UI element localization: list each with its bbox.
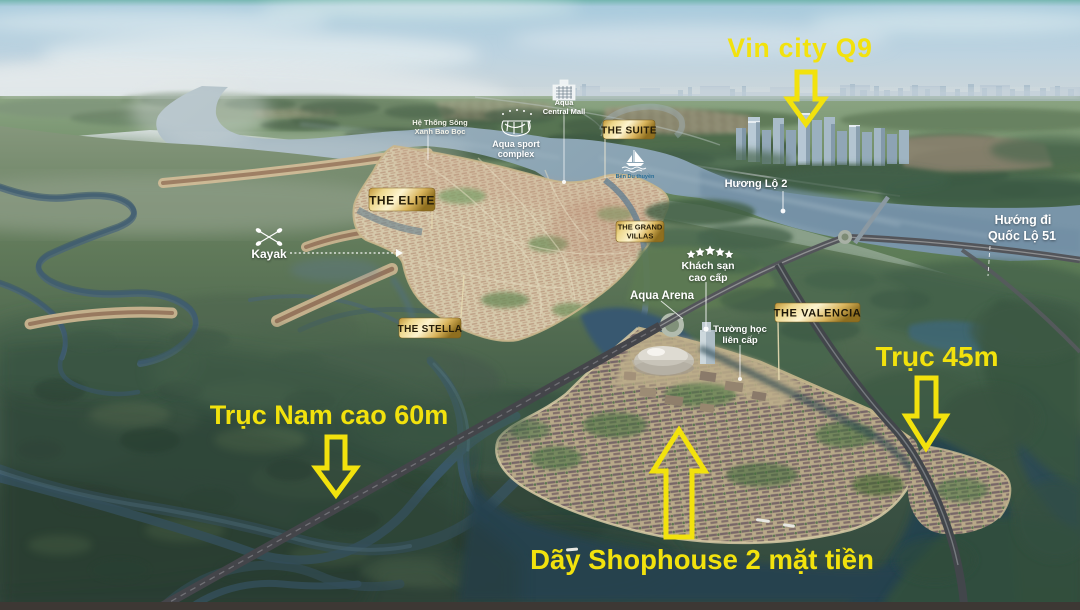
svg-text:Central Mall: Central Mall	[543, 107, 586, 116]
svg-text:Xanh Bao Bọc: Xanh Bao Bọc	[415, 127, 466, 136]
svg-text:Aqua: Aqua	[555, 98, 575, 107]
svg-text:THE GRAND: THE GRAND	[618, 223, 663, 232]
svg-text:Dãy Shophouse 2 mặt tiền: Dãy Shophouse 2 mặt tiền	[530, 544, 874, 575]
svg-text:Aqua sport: Aqua sport	[492, 139, 540, 149]
svg-text:Trường học: Trường học	[713, 324, 767, 335]
svg-text:Khách sạn: Khách sạn	[681, 260, 734, 272]
svg-text:Vin city Q9: Vin city Q9	[727, 33, 872, 63]
svg-text:THE SUITE: THE SUITE	[601, 126, 657, 137]
svg-text:complex: complex	[498, 149, 535, 159]
svg-text:Kayak: Kayak	[251, 247, 287, 261]
svg-text:VILLAS: VILLAS	[627, 232, 654, 241]
svg-text:Trục Nam cao 60m: Trục Nam cao 60m	[210, 400, 449, 430]
svg-text:THE STELLA: THE STELLA	[398, 324, 463, 335]
svg-text:Bến Du thuyền: Bến Du thuyền	[616, 173, 655, 180]
svg-text:Hương Lộ 2: Hương Lộ 2	[725, 178, 788, 190]
svg-text:THE VALENCIA: THE VALENCIA	[774, 308, 862, 320]
svg-text:Quốc Lộ 51: Quốc Lộ 51	[988, 229, 1056, 243]
svg-text:Hướng đi: Hướng đi	[995, 213, 1052, 227]
svg-text:Hệ Thống Sông: Hệ Thống Sông	[412, 118, 468, 127]
svg-text:Aqua Arena: Aqua Arena	[630, 290, 695, 302]
svg-text:THE ELITE: THE ELITE	[369, 194, 435, 208]
svg-text:liên cấp: liên cấp	[722, 335, 758, 346]
svg-text:cao cấp: cao cấp	[688, 272, 727, 284]
svg-text:Trục 45m: Trục 45m	[876, 341, 999, 372]
